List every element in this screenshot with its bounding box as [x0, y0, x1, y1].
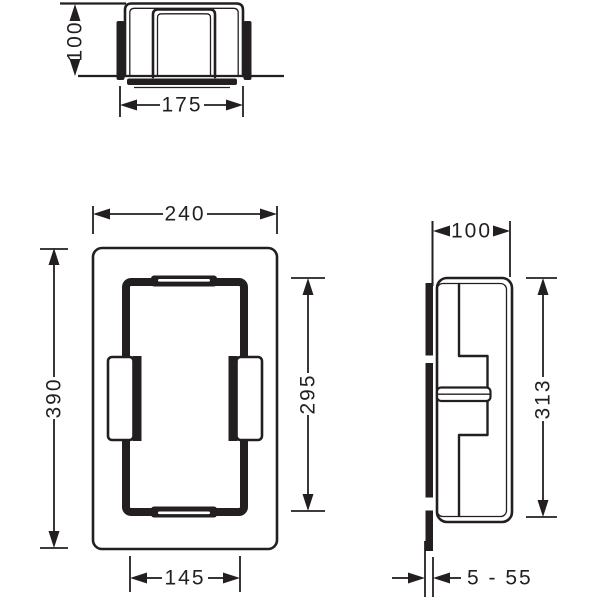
dim-side-height: 313 [526, 278, 557, 517]
arrowhead-down [538, 500, 549, 517]
flange-gap-lower [425, 498, 435, 511]
top-view: 100 175 [60, 4, 284, 118]
dim-side-depth-range: 5 - 55 [392, 541, 533, 597]
arrowhead-inward-left [433, 573, 450, 584]
arrowhead-up [303, 278, 314, 295]
dim-top-height: 100 [64, 4, 87, 76]
clip-notch-right [229, 356, 238, 441]
arrowhead-right [223, 573, 240, 584]
arrowhead-down [303, 494, 314, 511]
arrowhead-down [49, 531, 60, 548]
side-clip-left [108, 357, 134, 440]
dim-label-front-width: 240 [164, 203, 205, 226]
flange-gap-upper [425, 356, 435, 364]
arrowhead-left [93, 209, 110, 220]
front-view: 240 390 295 145 [40, 203, 325, 593]
dim-label-side-depth: 100 [451, 220, 492, 243]
flange-edge-bar [426, 283, 434, 551]
arrowhead-right [226, 100, 243, 111]
mounting-tab-bottom-slot [158, 512, 210, 515]
inner-shell-lower-profile [459, 401, 488, 516]
side-view: 100 313 5 - 55 [392, 220, 557, 598]
dim-label-front-inner-height: 295 [297, 373, 320, 414]
dim-front-inner-height: 295 [291, 278, 325, 511]
wall-niche-drawing: 100 175 240 [0, 0, 600, 600]
niche-opening-frame [126, 282, 244, 512]
arrowhead-left [433, 226, 450, 237]
dim-top-width: 175 [120, 86, 243, 117]
mounting-clip-left [117, 21, 125, 80]
arrowhead-up [538, 278, 549, 295]
casing-inner-line [130, 8, 238, 76]
arrowhead-right [493, 226, 510, 237]
arrowhead-up [70, 4, 81, 21]
dim-label-front-inner-width: 145 [164, 567, 205, 590]
mounting-tab-top-slot [158, 279, 210, 282]
flange-bar [127, 79, 237, 86]
arrowhead-left [120, 100, 137, 111]
arrowhead-inward-right [408, 573, 425, 584]
niche-shell-outline [153, 10, 215, 78]
arrowhead-up [49, 248, 60, 265]
mounting-clip-right [244, 21, 252, 80]
dim-side-depth: 100 [433, 220, 510, 278]
dim-label-top-height: 100 [64, 20, 87, 61]
dim-front-inner-width: 145 [130, 556, 240, 592]
dim-label-side-height: 313 [532, 378, 555, 419]
side-clip-right [237, 357, 263, 440]
dim-label-front-height: 390 [43, 377, 66, 418]
inner-shell-upper-profile [459, 284, 488, 387]
technical-drawing-canvas: 100 175 240 [0, 0, 600, 600]
arrowhead-left [130, 573, 147, 584]
clip-notch-left [133, 356, 142, 441]
dim-label-top-width: 175 [161, 94, 202, 117]
niche-shell-inner-line [158, 14, 211, 77]
dim-front-width: 240 [93, 203, 277, 235]
arrowhead-right [260, 209, 277, 220]
dim-front-height: 390 [40, 248, 68, 548]
dim-label-side-depth-range: 5 - 55 [467, 567, 533, 590]
